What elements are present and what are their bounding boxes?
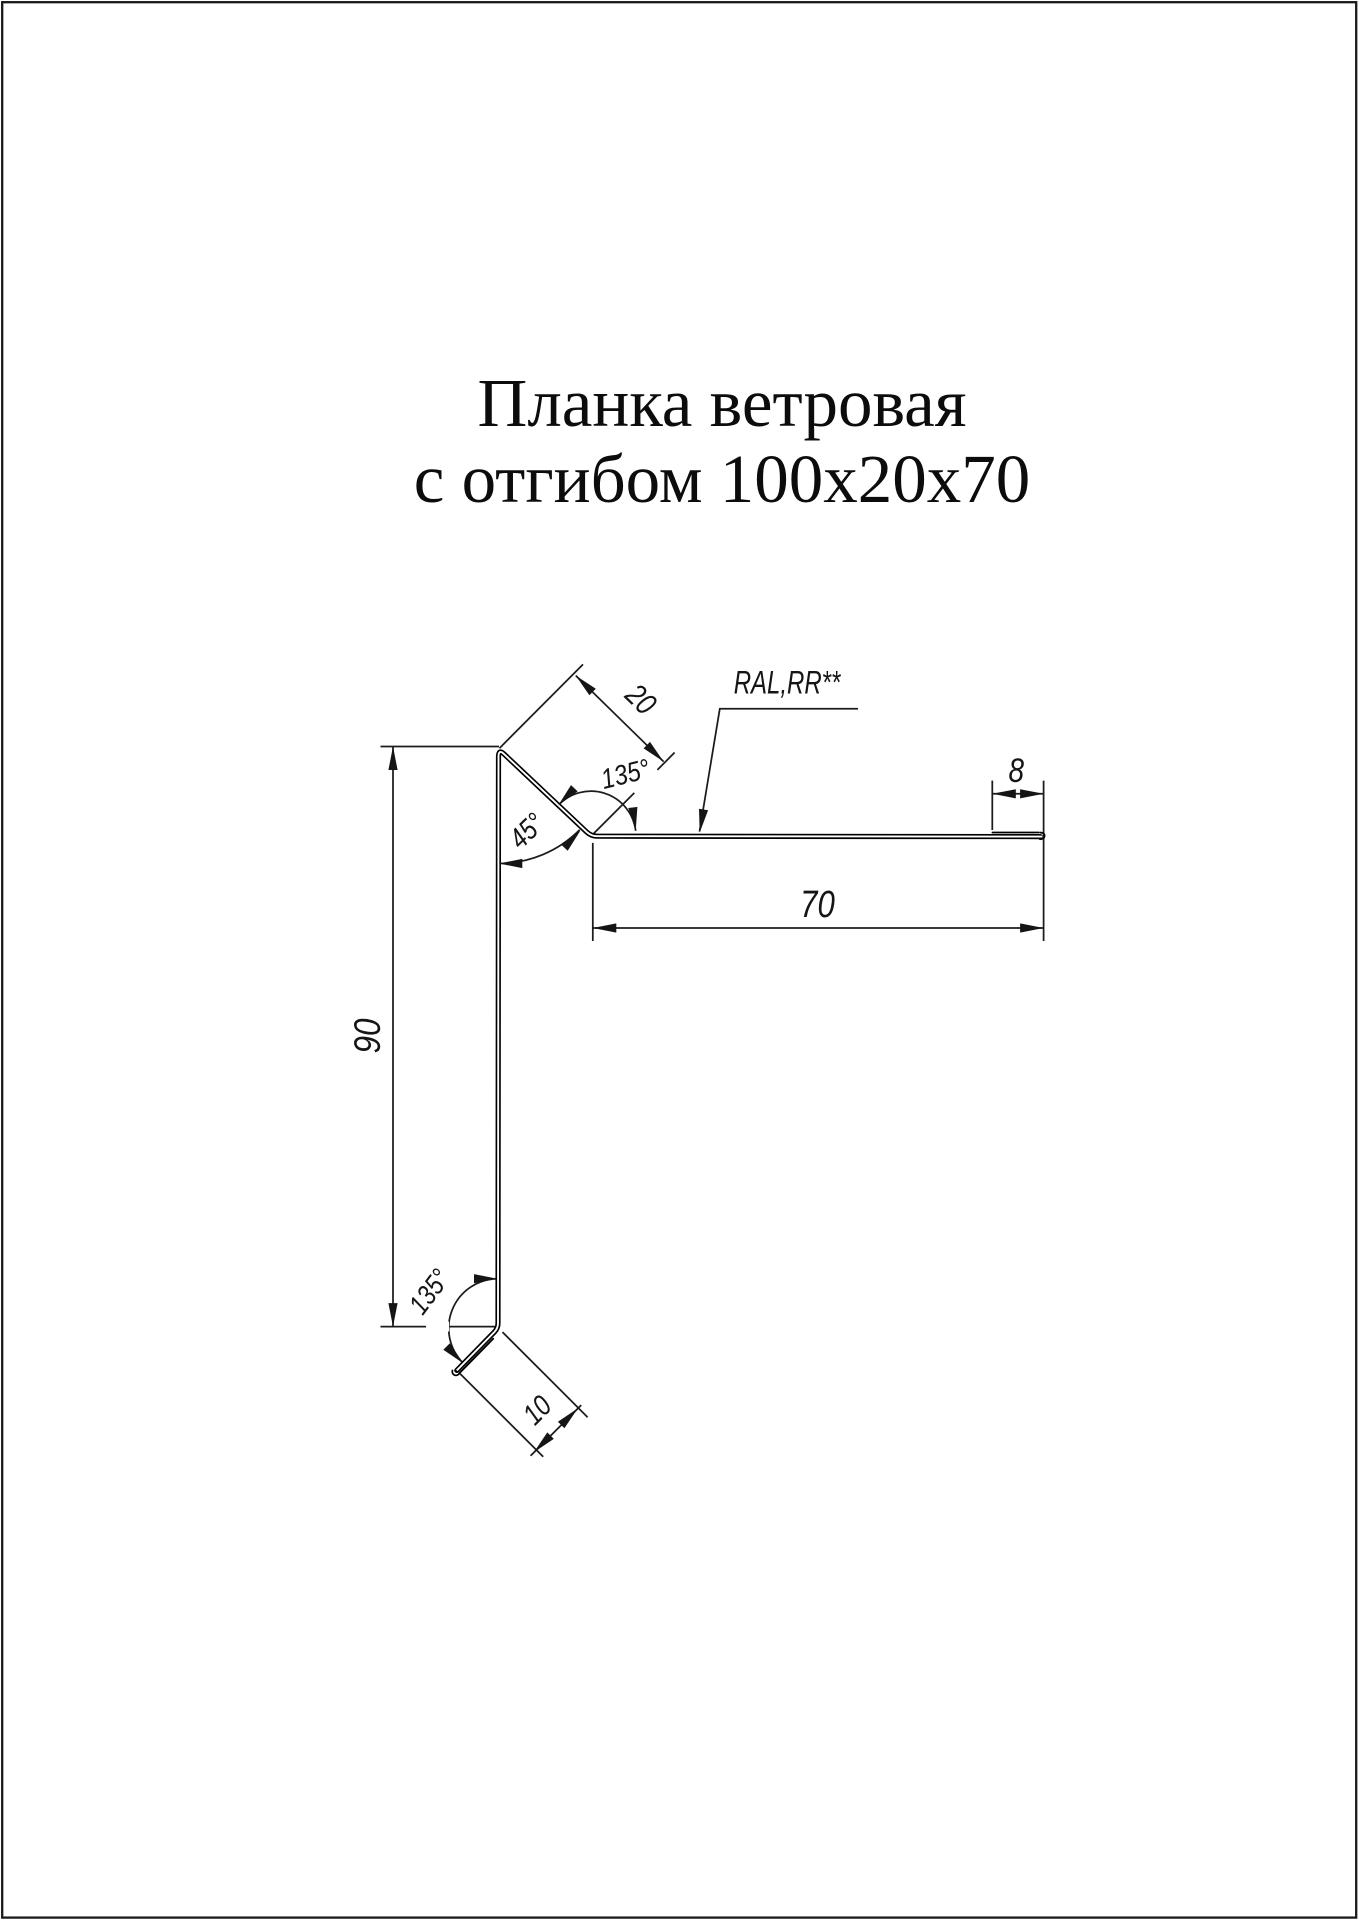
svg-text:8: 8 [1009, 751, 1025, 789]
svg-text:Планка ветровая: Планка ветровая [478, 365, 967, 441]
svg-text:90: 90 [348, 1019, 389, 1054]
svg-text:70: 70 [800, 884, 835, 926]
svg-text:RAL,RR**: RAL,RR** [734, 664, 841, 700]
svg-text:с отгибом 100х20х70: с отгибом 100х20х70 [414, 441, 1031, 517]
